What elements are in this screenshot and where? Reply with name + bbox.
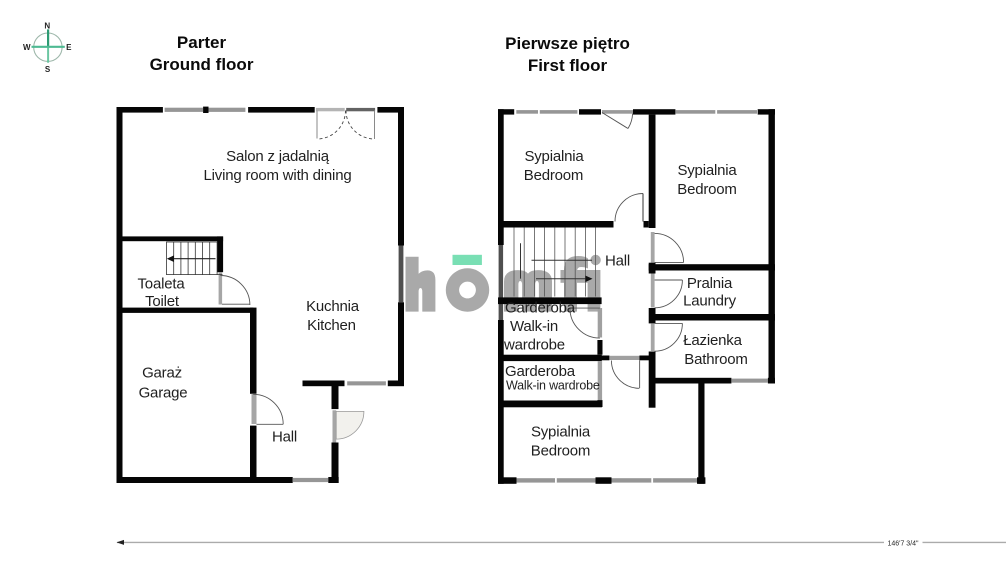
svg-text:First floor: First floor bbox=[528, 56, 608, 75]
svg-text:Hall: Hall bbox=[605, 253, 630, 270]
svg-text:Toilet: Toilet bbox=[145, 293, 180, 310]
svg-text:W: W bbox=[23, 43, 31, 52]
svg-text:146'7 3/4": 146'7 3/4" bbox=[887, 541, 919, 548]
svg-text:Kitchen: Kitchen bbox=[307, 317, 356, 334]
svg-text:S: S bbox=[45, 65, 51, 74]
svg-text:Parter: Parter bbox=[177, 33, 227, 52]
svg-text:Łazienka: Łazienka bbox=[683, 332, 742, 349]
svg-text:Hall: Hall bbox=[272, 429, 297, 446]
svg-text:Walk-in: Walk-in bbox=[510, 318, 558, 335]
svg-text:Salon z jadalnią: Salon z jadalnią bbox=[226, 148, 330, 165]
svg-text:Walk-in wardrobe: Walk-in wardrobe bbox=[506, 379, 600, 393]
svg-text:Ground floor: Ground floor bbox=[150, 55, 254, 74]
svg-text:Pierwsze piętro: Pierwsze piętro bbox=[505, 34, 630, 53]
svg-text:Living room with dining: Living room with dining bbox=[204, 167, 352, 184]
svg-text:N: N bbox=[44, 21, 50, 30]
svg-text:Garderoba: Garderoba bbox=[505, 300, 576, 317]
svg-text:Garaż: Garaż bbox=[142, 365, 182, 382]
svg-text:Pralnia: Pralnia bbox=[687, 275, 733, 292]
svg-text:Bedroom: Bedroom bbox=[531, 443, 590, 460]
svg-text:Bedroom: Bedroom bbox=[677, 181, 736, 198]
svg-text:wardrobe: wardrobe bbox=[503, 337, 565, 354]
svg-text:Laundry: Laundry bbox=[683, 293, 737, 310]
svg-text:Kuchnia: Kuchnia bbox=[306, 298, 360, 315]
svg-text:Garderoba: Garderoba bbox=[505, 363, 576, 380]
svg-text:Garage: Garage bbox=[139, 385, 188, 402]
svg-text:E: E bbox=[66, 43, 72, 52]
svg-text:Bedroom: Bedroom bbox=[524, 167, 583, 184]
svg-text:Sypialnia: Sypialnia bbox=[524, 148, 584, 165]
svg-text:Toaleta: Toaleta bbox=[138, 276, 186, 293]
svg-text:Bathroom: Bathroom bbox=[684, 351, 747, 368]
svg-text:Sypialnia: Sypialnia bbox=[531, 424, 591, 441]
svg-text:Sypialnia: Sypialnia bbox=[677, 162, 737, 179]
